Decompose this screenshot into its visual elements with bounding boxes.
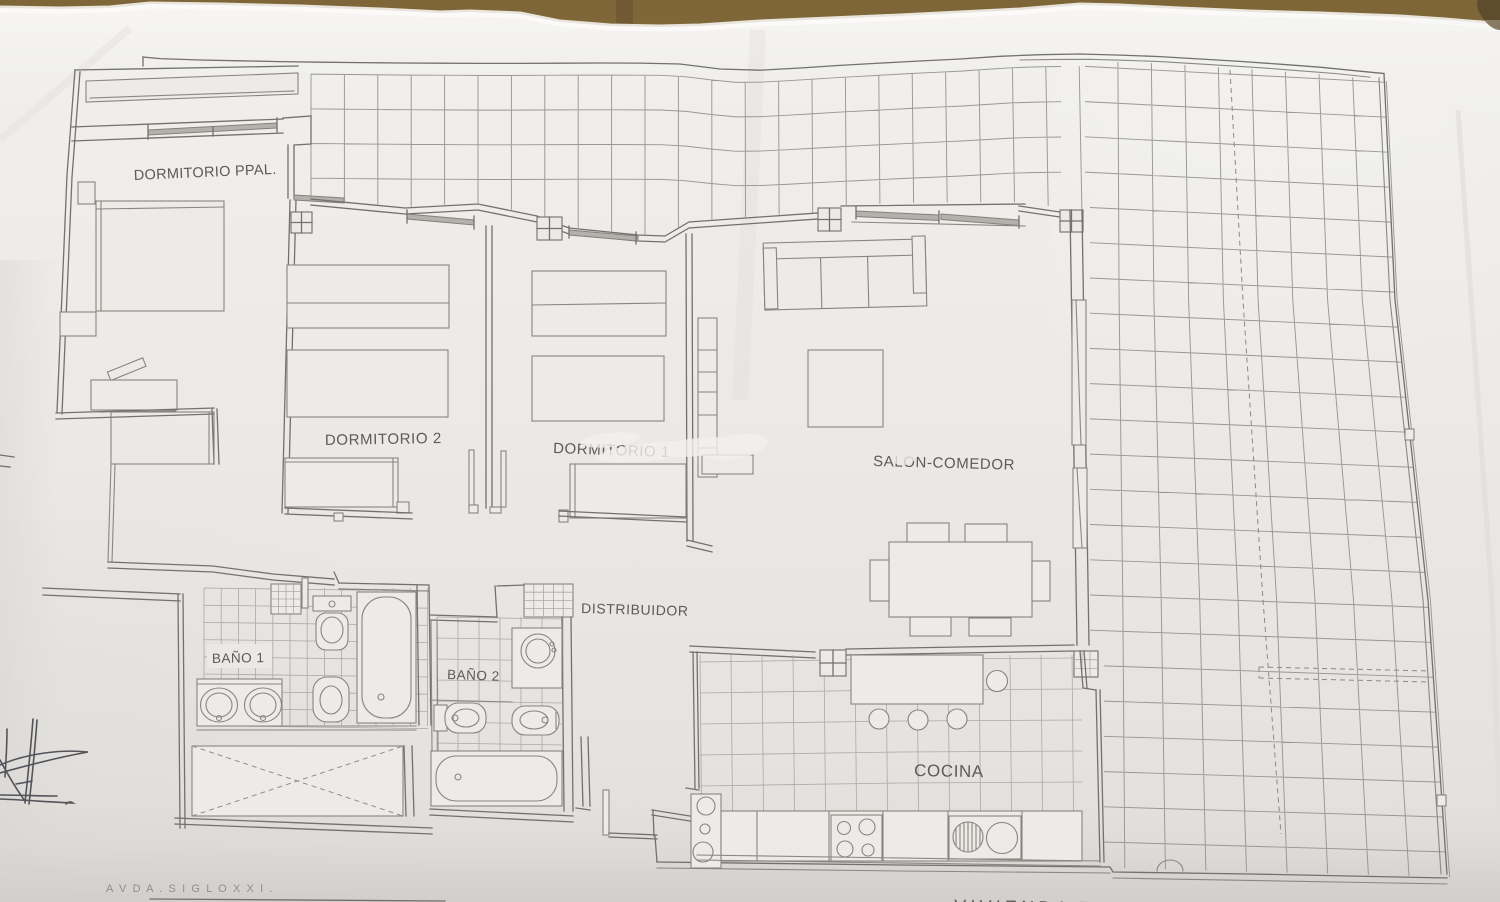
- svg-text:BAÑO 1: BAÑO 1: [212, 650, 265, 666]
- svg-text:BAÑO 2: BAÑO 2: [447, 667, 500, 684]
- svg-text:DORMITORIO 2: DORMITORIO 2: [325, 430, 442, 449]
- svg-text:DISTRIBUIDOR: DISTRIBUIDOR: [581, 600, 689, 619]
- svg-text:COCINA: COCINA: [914, 761, 984, 781]
- svg-text:A V D A . S I G L O X X: A V D A . S I G L O X X I .: [106, 883, 274, 895]
